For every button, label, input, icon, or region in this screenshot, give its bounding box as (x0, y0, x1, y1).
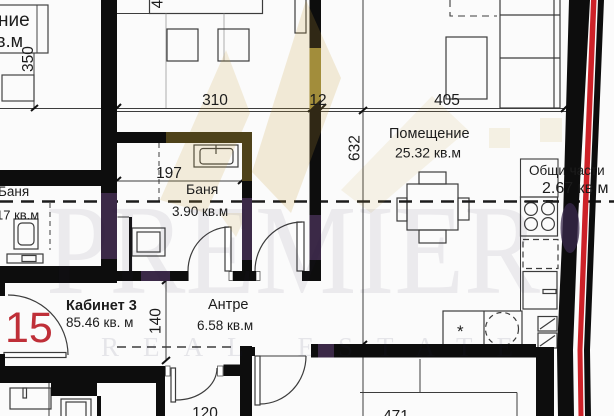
svg-text:405: 405 (434, 92, 460, 109)
svg-text:Баня: Баня (186, 181, 218, 197)
svg-text:Общи части: Общи части (529, 163, 605, 178)
svg-text:Кабинет 3: Кабинет 3 (66, 298, 137, 314)
svg-text:632: 632 (347, 135, 364, 161)
svg-text:85.46 кв. м: 85.46 кв. м (66, 315, 133, 330)
svg-text:Баня: Баня (0, 184, 29, 199)
svg-text:310: 310 (202, 92, 228, 109)
svg-text:*: * (457, 322, 464, 341)
svg-text:6.58 кв.м: 6.58 кв.м (197, 318, 253, 333)
svg-text:12: 12 (309, 92, 326, 109)
svg-text:471: 471 (383, 408, 409, 416)
svg-text:15: 15 (5, 304, 53, 352)
svg-text:120: 120 (192, 405, 218, 416)
svg-text:2.67 кв м: 2.67 кв м (542, 180, 609, 197)
svg-text:197: 197 (156, 165, 182, 182)
svg-text:ние: ние (0, 10, 30, 31)
svg-text:3.90 кв.м: 3.90 кв.м (172, 204, 228, 219)
svg-text:17 кв.м: 17 кв.м (0, 208, 39, 223)
svg-text:350: 350 (20, 46, 37, 72)
svg-text:25.32 кв.м: 25.32 кв.м (395, 145, 461, 161)
svg-text:140: 140 (148, 308, 165, 334)
svg-text:4: 4 (150, 0, 167, 8)
svg-text:Помещение: Помещение (389, 126, 470, 142)
svg-text:Антре: Антре (208, 297, 248, 313)
